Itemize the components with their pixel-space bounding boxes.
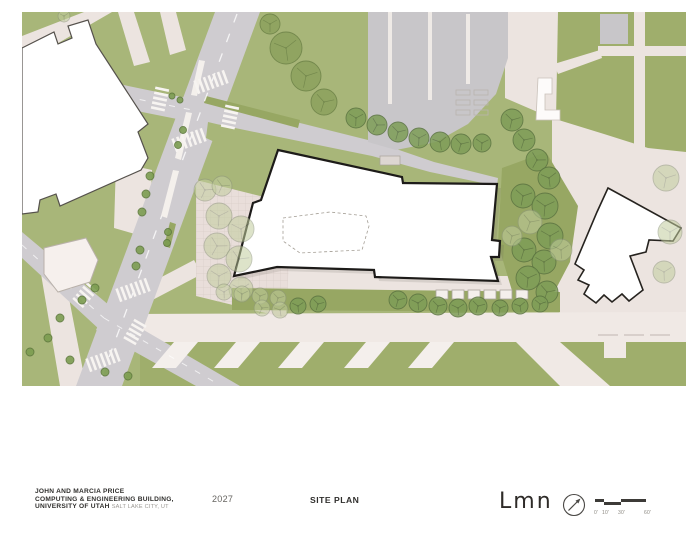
tree-trunk [665,177,667,179]
tree-canopy [101,368,109,376]
tree-symbol [132,262,140,270]
lmn-logo: Lmn [499,489,553,514]
tree-trunk [238,258,240,260]
tree-symbol [311,89,337,115]
tree-symbol [270,32,302,64]
tree-symbol [538,167,560,189]
tree-trunk [63,15,65,17]
tree-trunk [305,75,307,77]
scale-segment [621,499,647,502]
tree-symbol [175,142,182,149]
mall-dash [598,334,618,336]
tree-symbol [310,296,326,312]
tree-canopy [136,246,144,254]
tree-symbol [658,220,682,244]
tree-trunk [522,195,524,197]
mall [128,312,686,342]
tree-symbol [409,294,427,312]
scale-segment [595,499,604,502]
tree-symbol [165,229,172,236]
project-name-line3: UNIVERSITY OF UTAH SALT LAKE CITY, UT [35,503,174,512]
tree-trunk [218,275,220,277]
tree-symbol [180,127,187,134]
tree-symbol [449,299,467,317]
tree-symbol [550,239,572,261]
tree-trunk [523,139,525,141]
tree-symbol [653,165,679,191]
tree-symbol [388,122,408,142]
tree-trunk [511,235,513,237]
tree-trunk [297,305,299,307]
tree-trunk [279,309,281,311]
tree-trunk [543,261,545,263]
tree-trunk [216,245,218,247]
tree-trunk [269,23,271,25]
tree-symbol [204,233,230,259]
scale-label: 0' [594,510,598,516]
tree-trunk [221,185,223,187]
tree-trunk [519,305,521,307]
tree-canopy [164,240,171,247]
tree-symbol [512,298,528,314]
tree-trunk [317,303,319,305]
tree-trunk [546,291,548,293]
project-name-line2: COMPUTING & ENGINEERING BUILDING, [35,496,174,504]
tree-symbol [511,184,535,208]
tree-trunk [376,124,378,126]
tree-symbol [66,356,74,364]
tree-canopy [78,296,86,304]
tree-trunk [511,119,513,121]
parking-stripe [466,14,470,84]
tree-trunk [397,131,399,133]
project-location: SALT LAKE CITY, UT [112,504,169,510]
tree-canopy [91,284,99,292]
tree-trunk [481,142,483,144]
tree-symbol [44,334,52,342]
bike-rack [484,290,496,299]
tree-symbol [516,266,540,290]
tree-trunk [261,307,263,309]
bike-rack [500,290,512,299]
tree-trunk [223,291,225,293]
tree-canopy [169,93,175,99]
sheet-title: SITE PLAN [310,495,359,505]
parking-stripe [388,12,392,104]
tree-canopy [175,142,182,149]
tree-symbol [502,226,522,246]
tree-symbol [142,190,150,198]
tree-symbol [216,284,232,300]
tree-canopy [138,208,146,216]
tree-symbol [91,284,99,292]
tree-trunk [397,299,399,301]
year-label: 2027 [212,494,233,504]
tree-trunk [529,221,531,223]
tree-symbol [513,129,535,151]
path-ne-horizontal [598,46,686,56]
scale-label: 60' [644,510,651,516]
tree-trunk [544,205,546,207]
tree-canopy [124,372,132,380]
tree-canopy [44,334,52,342]
tree-symbol [212,176,232,196]
tree-trunk [549,235,551,237]
tree-symbol [234,286,250,302]
tree-symbol [58,10,70,22]
tree-canopy [66,356,74,364]
tree-trunk [204,189,206,191]
tree-canopy [146,172,154,180]
tree-trunk [323,101,325,103]
bike-rack [452,290,464,299]
tree-symbol [272,302,288,318]
tree-symbol [124,372,132,380]
tree-trunk [669,231,671,233]
tree-trunk [560,249,562,251]
tree-trunk [457,307,459,309]
tree-trunk [499,307,501,309]
tree-symbol [501,109,523,131]
title-block: JOHN AND MARCIA PRICE COMPUTING & ENGINE… [35,488,174,512]
tree-trunk [477,305,479,307]
tree-trunk [527,277,529,279]
tree-symbol [653,261,675,283]
mall-stub [604,342,626,358]
tree-symbol [389,291,407,309]
mall-dash [650,334,670,336]
tree-canopy [56,314,64,322]
tree-trunk [663,271,665,273]
tree-trunk [355,117,357,119]
tree-symbol [469,297,487,315]
project-owner: UNIVERSITY OF UTAH [35,503,110,510]
tree-symbol [206,203,232,229]
tree-trunk [417,302,419,304]
tree-symbol [164,240,171,247]
tree-trunk [418,137,420,139]
tree-symbol [78,296,86,304]
site-plan-drawing [0,0,700,540]
tree-symbol [101,368,109,376]
mall-dash [624,334,644,336]
tree-symbol [290,298,306,314]
tree-trunk [439,141,441,143]
tree-trunk [259,295,261,297]
tree-trunk [277,297,279,299]
tree-trunk [548,177,550,179]
tree-symbol [291,61,321,91]
project-name-line1: JOHN AND MARCIA PRICE [35,488,174,496]
tree-symbol [146,172,154,180]
tree-trunk [523,249,525,251]
tree-symbol [429,297,447,315]
pavement-topright [600,14,628,44]
tree-canopy [26,348,34,356]
scale-label: 10' [602,510,609,516]
tree-canopy [177,97,183,103]
tree-symbol [228,216,254,242]
tree-symbol [136,246,144,254]
tree-trunk [218,215,220,217]
tree-symbol [226,246,252,272]
loading-hatch [380,156,400,165]
tree-canopy [142,190,150,198]
tree-trunk [539,303,541,305]
tree-canopy [132,262,140,270]
scale-segment [604,502,621,505]
site-plan-map [0,0,700,540]
tree-symbol [260,14,280,34]
scale-bar: 0' 10' 30' 60' [595,497,655,519]
tree-symbol [346,108,366,128]
scale-label: 30' [618,510,625,516]
tree-symbol [367,115,387,135]
tree-trunk [460,143,462,145]
tree-symbol [169,93,175,99]
tree-symbol [254,300,270,316]
tree-trunk [285,47,287,49]
tree-symbol [177,97,183,103]
tree-trunk [241,293,243,295]
tree-canopy [165,229,172,236]
tree-trunk [240,228,242,230]
tree-trunk [536,159,538,161]
tree-symbol [409,128,429,148]
tree-symbol [451,134,471,154]
north-arrow-icon [561,492,587,518]
tree-trunk [437,305,439,307]
tree-symbol [26,348,34,356]
tree-symbol [56,314,64,322]
tree-symbol [492,300,508,316]
tree-symbol [430,132,450,152]
tree-symbol [473,134,491,152]
bike-rack [516,290,528,299]
path-ne-vertical [634,12,645,152]
tree-canopy [180,127,187,134]
parking-stripe [428,12,432,100]
tree-symbol [138,208,146,216]
tree-symbol [532,296,548,312]
